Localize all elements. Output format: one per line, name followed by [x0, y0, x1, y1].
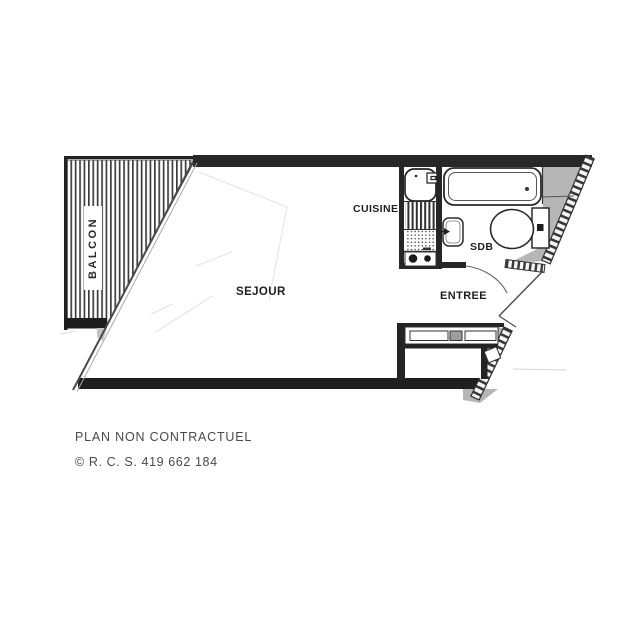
closet-wall-left — [397, 323, 405, 381]
stove-mark — [423, 248, 431, 251]
burner-right-icon — [424, 255, 431, 262]
closet-divider-block — [450, 331, 462, 341]
bathroom-door-arc — [466, 266, 507, 293]
kitchen-wall-left — [399, 161, 404, 268]
counter-stipple — [405, 230, 436, 251]
bathtub — [444, 168, 541, 205]
toilet — [491, 210, 534, 249]
wall-top — [193, 155, 592, 167]
closet-wall-mid — [397, 344, 498, 349]
balcony-rail-bottom — [64, 318, 107, 329]
balcony-rail-left — [64, 158, 68, 330]
closet-lower-area — [405, 349, 481, 379]
floor-plan: BALCON SEJOUR CUISINE SDB ENTREE PLAN NO… — [0, 0, 640, 617]
entry-door-leaf — [499, 271, 543, 316]
drainer — [405, 202, 436, 229]
wall-bottom — [78, 378, 482, 389]
kitchen-label: CUISINE — [353, 203, 398, 215]
entrance-label: ENTREE — [440, 290, 487, 302]
bathroom-wall-south — [441, 262, 466, 268]
burner-left-icon — [409, 254, 418, 263]
bathroom-label: SDB — [470, 241, 493, 253]
bathtub-drain-dot — [525, 187, 529, 191]
wall-bathroom-stub-hatched — [505, 260, 545, 273]
closet-shelf-right — [465, 331, 496, 341]
living-room-label: SEJOUR — [236, 286, 286, 298]
floor-plan-drawing — [0, 0, 640, 617]
closet-shelf-left — [410, 331, 448, 341]
balcony-label: BALCON — [84, 206, 102, 290]
closet-wall-top — [397, 323, 504, 327]
registration-text: © R. C. S. 419 662 184 — [75, 455, 218, 469]
disclaimer-text: PLAN NON CONTRACTUEL — [75, 430, 252, 444]
balcony-rail-top — [64, 156, 197, 159]
toilet-tank-button — [537, 224, 544, 231]
sink-drain-dot — [415, 175, 418, 178]
